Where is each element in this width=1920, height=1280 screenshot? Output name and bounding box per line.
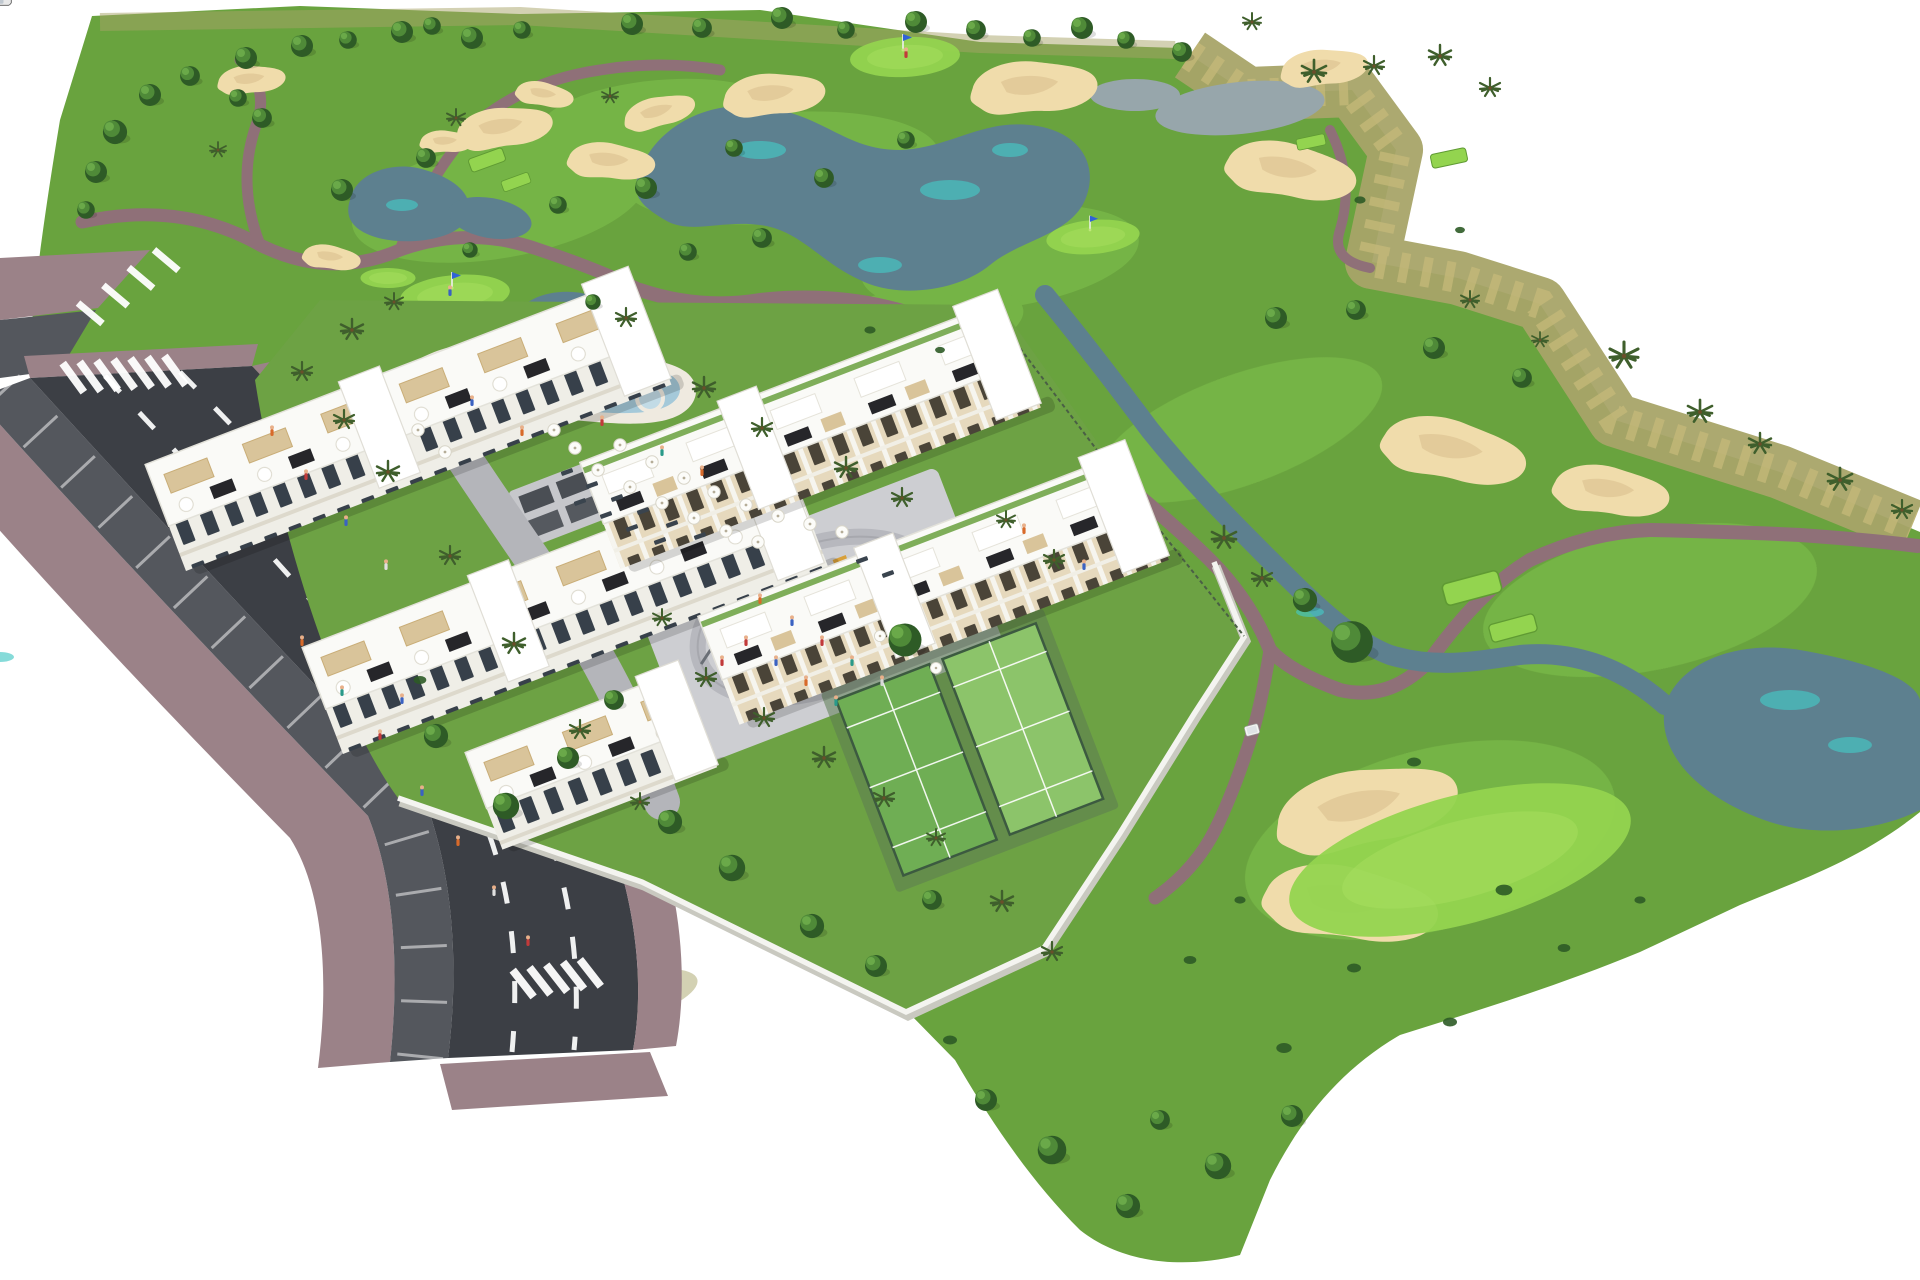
masterplan-render: Aerial 3D masterplan render - golf resor… (0, 0, 1920, 1280)
person (492, 885, 496, 896)
person (660, 445, 664, 456)
bush (943, 1036, 957, 1045)
pond-gray-north-2 (1090, 79, 1180, 111)
sidewalk-south-wrap (440, 1052, 668, 1110)
tree (1117, 31, 1137, 49)
person (850, 655, 854, 666)
umbrella (874, 630, 885, 641)
umbrella (688, 512, 700, 524)
person (744, 635, 748, 646)
umbrella (752, 536, 764, 548)
umbrella (804, 518, 816, 530)
person (304, 469, 308, 480)
tree (1172, 42, 1195, 62)
person (720, 655, 724, 666)
person (340, 685, 344, 696)
scene-canvas (0, 0, 1920, 1280)
umbrella (678, 472, 690, 484)
person (880, 675, 884, 686)
person (600, 415, 604, 426)
person (834, 695, 838, 706)
umbrella (548, 424, 560, 436)
person (526, 935, 530, 946)
umbrella (708, 486, 720, 498)
person (758, 593, 762, 604)
bush (1354, 196, 1365, 203)
person (300, 635, 304, 646)
bush (414, 676, 427, 684)
person (470, 395, 474, 406)
bush (1455, 227, 1465, 233)
tree (771, 7, 796, 29)
person (400, 693, 404, 704)
person (700, 465, 704, 476)
umbrella (656, 497, 668, 509)
person (456, 835, 460, 846)
tee (1430, 147, 1468, 168)
umbrella (836, 526, 848, 538)
umbrella (740, 499, 752, 511)
person (820, 635, 824, 646)
person (804, 675, 808, 686)
umbrella (624, 481, 636, 493)
umbrella (720, 525, 732, 537)
umbrella (569, 442, 581, 454)
umbrella (646, 456, 658, 468)
palm (1429, 45, 1451, 65)
bush (1234, 896, 1245, 903)
palm (1480, 78, 1500, 96)
person (420, 785, 424, 796)
umbrella (930, 662, 941, 673)
bush (1496, 885, 1513, 896)
bush (1347, 964, 1361, 973)
umbrella (439, 446, 451, 458)
umbrella (772, 510, 784, 522)
person (1082, 559, 1086, 570)
person (384, 559, 388, 570)
bush (935, 347, 945, 353)
palm (1610, 342, 1638, 367)
palm (1243, 13, 1261, 29)
bush (1634, 896, 1645, 903)
person (520, 425, 524, 436)
green (361, 268, 416, 288)
bush (864, 326, 875, 333)
bush (1407, 758, 1421, 767)
tree (1023, 29, 1043, 47)
complex-cars (0, 0, 11, 5)
person (790, 615, 794, 626)
umbrella (614, 439, 626, 451)
person (1022, 523, 1026, 534)
tree (966, 20, 989, 40)
tree (1071, 17, 1096, 39)
person (270, 425, 274, 436)
umbrella (412, 424, 424, 436)
bush (1184, 956, 1197, 964)
person (448, 285, 452, 296)
bush (1443, 1018, 1457, 1027)
umbrella (592, 464, 604, 476)
bush (1276, 1043, 1291, 1053)
person (378, 729, 382, 740)
person (344, 515, 348, 526)
person (904, 47, 908, 58)
tree (905, 11, 930, 33)
person (774, 655, 778, 666)
car (0, 0, 11, 5)
bush (1558, 944, 1571, 952)
